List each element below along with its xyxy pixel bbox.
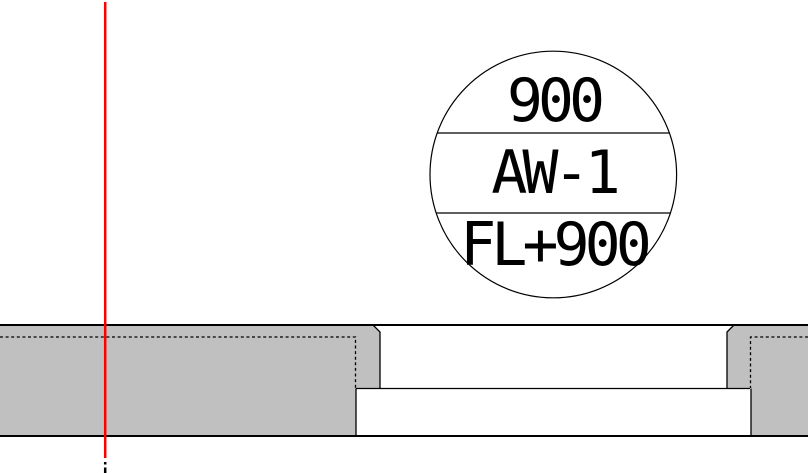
section-drawing	[0, 0, 808, 473]
callout-sill-level-label: FL+900	[430, 214, 677, 276]
wall-fill-left	[0, 325, 380, 435]
cad-drawing-canvas[interactable]: 900 AW-1 FL+900	[0, 0, 808, 473]
wall-fill-right	[727, 325, 808, 435]
callout-width-label: 900	[430, 70, 677, 132]
callout-window-code-label: AW-1	[430, 142, 677, 204]
